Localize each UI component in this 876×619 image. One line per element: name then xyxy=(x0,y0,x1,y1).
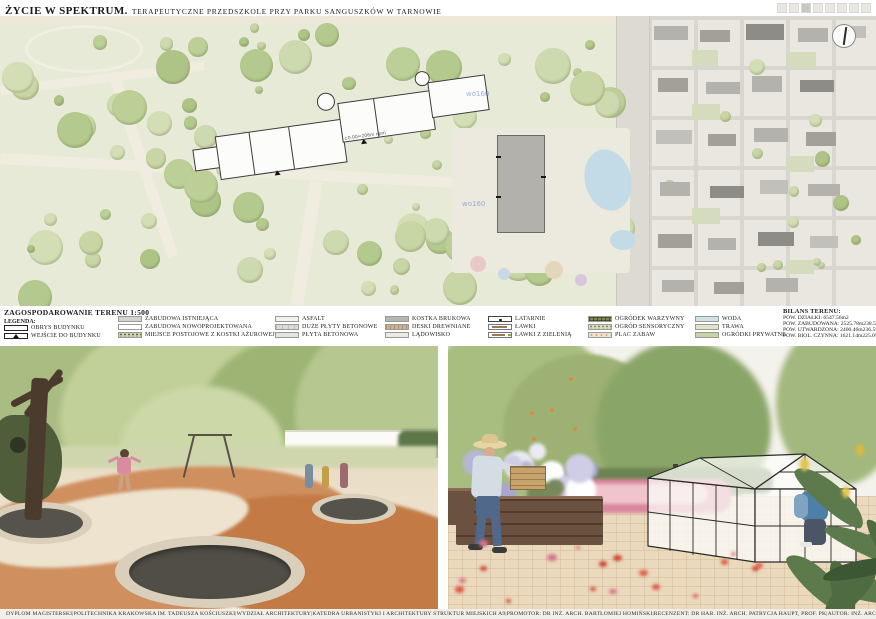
tree xyxy=(412,203,421,212)
legend-swatch-obrys xyxy=(4,325,28,331)
legend-item-label: KOSTKA BRUKOWA xyxy=(412,316,471,322)
playground-circle xyxy=(470,256,486,272)
legend-strip: ZAGOSPODAROWANIE TERENU 1:500 LEGENDA: O… xyxy=(0,306,876,344)
raised-planter-box xyxy=(448,488,474,525)
tree xyxy=(184,169,218,203)
playground-circle xyxy=(545,261,563,279)
legend-item-label: WODA xyxy=(722,316,741,322)
legend-item-label: WEJŚCIE DO BUDYNKU xyxy=(31,333,101,339)
header-bar: ŻYCIE W SPEKTRUM. TERAPEUTYCZNE PRZEDSZK… xyxy=(0,0,876,16)
city-building xyxy=(658,78,688,92)
backpack xyxy=(794,494,808,518)
sheet-square-current xyxy=(801,3,811,13)
trampoline-rim xyxy=(312,494,396,524)
legend-swatch-trawa xyxy=(695,324,719,330)
courtyard-green xyxy=(692,104,720,120)
legend-swatch-ladowisko xyxy=(385,332,409,338)
legend-swatch-plyta xyxy=(275,332,299,338)
yellow-flower xyxy=(842,486,850,498)
tree xyxy=(720,111,731,122)
poppy-flower xyxy=(731,552,736,556)
tree xyxy=(146,148,167,169)
legend-item-label: ZABUDOWA ISTNIEJĄCA xyxy=(145,316,218,322)
tree xyxy=(789,186,799,196)
tree xyxy=(100,209,112,221)
north-arrow-icon xyxy=(832,24,856,48)
tree xyxy=(357,184,368,195)
tree xyxy=(188,37,207,56)
city-building xyxy=(754,128,788,142)
courtyard-green xyxy=(788,156,814,172)
city-building xyxy=(658,234,692,248)
city-building xyxy=(708,134,736,146)
tree xyxy=(184,116,197,129)
legend-item-label: MIEJSCE POSTOJOWE Z KOSTKI AŻUROWEJ xyxy=(145,332,275,338)
tree xyxy=(79,231,103,255)
site-balance: BILANS TERENU: POW. DZIAŁKI: 6547.56m2 P… xyxy=(783,308,873,339)
tree xyxy=(264,248,277,261)
legend-swatch-kostka xyxy=(385,316,409,322)
page-title: ŻYCIE W SPEKTRUM. TERAPEUTYCZNE PRZEDSZK… xyxy=(5,1,442,19)
tree xyxy=(752,148,763,159)
grass-strip xyxy=(0,446,438,468)
legend-item-label: ŁAWKI xyxy=(515,324,536,330)
tree xyxy=(140,249,160,269)
legend-swatch-deski xyxy=(385,324,409,330)
legend-col-6: OGRÓDEK WARZYWNY OGRÓD SENSORYCZNY PLAC … xyxy=(588,316,685,341)
courtyard-green xyxy=(692,50,718,66)
tree xyxy=(147,111,172,136)
legend-col-5: LATARNIE ŁAWKI ŁAWKI Z ZIELENIĄ xyxy=(488,316,572,341)
footer-item: WYDZIAŁ ARCHITEKTURY xyxy=(237,611,311,617)
title-subtitle: TERAPEUTYCZNE PRZEDSZKOLE PRZY PARKU SAN… xyxy=(132,7,442,16)
city-building xyxy=(706,82,740,94)
city-building xyxy=(798,28,828,42)
legend-item-label: OBRYS BUDYNKU xyxy=(31,325,85,331)
play-structure-hole xyxy=(10,437,26,453)
poppy-flower xyxy=(609,589,617,595)
tree xyxy=(112,90,147,125)
legend-item-label: ASFALT xyxy=(302,316,325,322)
child-torso xyxy=(117,457,131,474)
urban-blocks-area xyxy=(648,16,876,306)
sheet-square xyxy=(861,3,871,13)
sheet-square xyxy=(837,3,847,13)
building-wing xyxy=(215,119,348,180)
legend-item-label: PŁYTA BETONOWA xyxy=(302,332,358,338)
swing-bar xyxy=(188,434,232,436)
tree xyxy=(54,95,64,105)
existing-building xyxy=(497,135,545,233)
city-building xyxy=(714,282,744,294)
straw-hat-crown xyxy=(482,434,498,443)
sheet-square xyxy=(777,3,787,13)
adult-figure xyxy=(340,463,348,488)
legend-item-label: LĄDOWISKO xyxy=(412,332,450,338)
site-plan-map: ±0.00=206m npm wo160 wo160 xyxy=(0,16,876,306)
legend-swatch-latarnie xyxy=(488,316,512,322)
entrance-triangle xyxy=(274,170,281,176)
trampoline-mat xyxy=(320,498,388,520)
north-needle xyxy=(843,27,847,45)
balance-row-text: POW. BIOL. CZYNNA: 1621.14m2 xyxy=(783,333,865,339)
tree xyxy=(141,213,157,229)
city-building xyxy=(808,184,840,196)
city-building xyxy=(700,30,730,42)
city-building xyxy=(758,232,794,246)
tree xyxy=(240,49,273,82)
presentation-board: ŻYCIE W SPEKTRUM. TERAPEUTYCZNE PRZEDSZK… xyxy=(0,0,876,619)
tree xyxy=(535,48,570,83)
footer-item: KATEDRA URBANISTYKI I ARCHITEKTURY STRUK… xyxy=(312,611,505,617)
sheet-square xyxy=(825,3,835,13)
tree xyxy=(540,92,550,102)
hydrangea-bloom xyxy=(529,443,546,460)
poppy-flower xyxy=(639,570,648,576)
poppy-flower xyxy=(613,555,621,561)
footer-item: PROMOTOR: DR INŻ. ARCH. BARTŁOMIEJ HOMIŃ… xyxy=(507,611,653,617)
footer-item: POLITECHNIKA KRAKOWSKA IM. TADEUSZA KOŚC… xyxy=(74,611,236,617)
tree xyxy=(160,37,174,51)
legend-swatch-woda xyxy=(695,316,719,322)
city-building xyxy=(662,280,694,292)
legend-item-label: OGRÓD SENSORYCZNY xyxy=(615,324,685,330)
tree xyxy=(773,260,783,270)
city-building xyxy=(710,186,744,198)
tree xyxy=(279,40,312,73)
legend-swatch-plac-zabaw xyxy=(588,332,612,338)
entrance-mark xyxy=(496,196,501,198)
tree xyxy=(357,241,382,266)
sheet-index xyxy=(777,3,871,13)
legend-swatch-ogrodek-warzywny xyxy=(588,316,612,322)
rendering-garden xyxy=(448,346,876,609)
tree xyxy=(809,114,822,127)
legend-col-3: ASFALT DUŻE PŁYTY BETONOWE PŁYTA BETONOW… xyxy=(275,316,377,341)
tree xyxy=(27,245,35,253)
legend-swatch-wejscie xyxy=(4,333,28,339)
tree xyxy=(255,86,263,94)
city-building xyxy=(806,132,836,146)
poppy-flower xyxy=(721,559,729,564)
tree xyxy=(250,23,259,32)
legend-item-label: PLAC ZABAW xyxy=(615,332,655,338)
tree xyxy=(110,145,125,160)
city-building xyxy=(752,76,782,92)
tree xyxy=(585,40,595,50)
legend-swatch-asfalt xyxy=(275,316,299,322)
tree xyxy=(156,50,189,83)
legend-swatch-lawki xyxy=(488,324,512,330)
yellow-flower xyxy=(800,458,809,471)
tree xyxy=(18,280,52,306)
poppy-flower xyxy=(479,540,489,547)
trampoline-mat xyxy=(129,545,291,599)
tree xyxy=(749,59,765,75)
tree xyxy=(390,285,399,294)
city-building xyxy=(760,180,788,194)
poppy-flower xyxy=(599,561,607,567)
playground-circle xyxy=(575,274,587,286)
map-watermark: wo160 xyxy=(462,200,485,208)
city-building xyxy=(810,236,838,248)
legend-col-7: WODA TRAWA OGRÓDKI PRYWATNE xyxy=(695,316,786,341)
city-building xyxy=(654,26,688,40)
legend-item-label: ŁAWKI Z ZIELENIĄ xyxy=(515,332,572,338)
poppy-flower xyxy=(455,586,465,593)
playground-circle xyxy=(498,268,510,280)
legend-col-2: ZABUDOWA ISTNIEJĄCA ZABUDOWA NOWOPROJEKT… xyxy=(118,316,275,341)
legend-swatch-zabudowa-nowa xyxy=(118,324,142,330)
sheet-square xyxy=(789,3,799,13)
poppy-flower xyxy=(506,599,511,603)
city-building xyxy=(660,182,690,196)
tree xyxy=(239,37,249,47)
yellow-flower xyxy=(856,444,864,456)
hydrangea-bloom xyxy=(546,479,564,497)
sheet-square xyxy=(813,3,823,13)
courtyard-green xyxy=(692,208,720,224)
poppy-flower xyxy=(590,587,596,591)
tree xyxy=(361,281,376,296)
tree xyxy=(57,112,93,148)
poppy-flower xyxy=(547,554,556,561)
credits-footer: DYPLOM MAGISTERSKI | POLITECHNIKA KRAKOW… xyxy=(0,609,876,619)
child-figure xyxy=(305,464,313,488)
tree xyxy=(757,263,766,272)
tree xyxy=(393,258,410,275)
legend-item-label: DESKI DREWNIANE xyxy=(412,324,471,330)
legend-col-4: KOSTKA BRUKOWA DESKI DREWNIANE LĄDOWISKO xyxy=(385,316,471,341)
legend-item-label: TRAWA xyxy=(722,324,744,330)
tree xyxy=(2,62,34,94)
tree xyxy=(315,23,339,47)
footer-item: DYPLOM MAGISTERSKI xyxy=(6,611,72,617)
legend-swatch-zabudowa-istniejaca xyxy=(118,316,142,322)
tree xyxy=(395,221,426,252)
rendering-playground xyxy=(0,346,438,609)
legend-swatch-ogrodki-prywatne xyxy=(695,332,719,338)
courtyard-green xyxy=(788,52,816,68)
city-building xyxy=(656,130,692,144)
tree xyxy=(237,257,263,283)
city-building xyxy=(746,24,784,40)
tree xyxy=(323,230,349,256)
footer-item: AUTOR: INŻ. ARCH. DOMINIKA SUCHOWSKA xyxy=(828,611,876,617)
tree xyxy=(443,270,478,305)
tree xyxy=(833,195,849,211)
legend-swatch-ogrod-sensoryczny xyxy=(588,324,612,330)
legend-item-label: DUŻE PŁYTY BETONOWE xyxy=(302,324,377,330)
legend-item-label: ZABUDOWA NOWOPROJEKTOWANA xyxy=(145,324,252,330)
tree xyxy=(851,235,861,245)
legend-swatch-miejsce-postojowe xyxy=(118,332,142,338)
entrance-mark xyxy=(541,176,546,178)
wooden-crate xyxy=(510,466,546,490)
poppy-flower xyxy=(652,584,660,590)
sheet-square xyxy=(849,3,859,13)
title-main: ŻYCIE W SPEKTRUM. xyxy=(5,5,128,17)
gardener-shoe xyxy=(492,547,507,553)
trampoline-rim xyxy=(115,536,305,608)
footer-item: RECENZENT: DR HAB. INŻ. ARCH. PATRYCJA H… xyxy=(654,611,826,617)
tree xyxy=(498,53,511,66)
legend-item-label: LATARNIE xyxy=(515,316,545,322)
poppy-flower xyxy=(693,594,698,598)
tree xyxy=(298,29,310,41)
legend-item-label: OGRÓDKI PRYWATNE xyxy=(722,332,786,338)
courtyard-green xyxy=(788,260,814,274)
site-balance-title: BILANS TERENU: xyxy=(783,308,873,315)
balance-row-pct: 25.0% xyxy=(865,333,876,339)
city-building xyxy=(766,278,798,292)
legend-item-label: OGRÓDEK WARZYWNY xyxy=(615,316,685,322)
tree xyxy=(815,151,831,167)
child-shoe xyxy=(800,542,812,547)
city-building xyxy=(708,238,736,250)
park-path xyxy=(290,181,322,306)
city-building xyxy=(800,80,834,92)
tree xyxy=(182,98,197,113)
tree xyxy=(788,217,799,228)
legend-swatch-lawki-zielen xyxy=(488,332,512,338)
tree xyxy=(44,213,57,226)
legend-swatch-duze-plyty xyxy=(275,324,299,330)
map-watermark: wo160 xyxy=(466,90,489,98)
tree xyxy=(342,77,355,90)
park-oval-path xyxy=(25,25,143,73)
child-figure xyxy=(322,466,329,488)
building-rotunda xyxy=(316,92,336,112)
tree xyxy=(93,35,107,49)
pond xyxy=(610,230,636,250)
tree xyxy=(256,218,269,231)
